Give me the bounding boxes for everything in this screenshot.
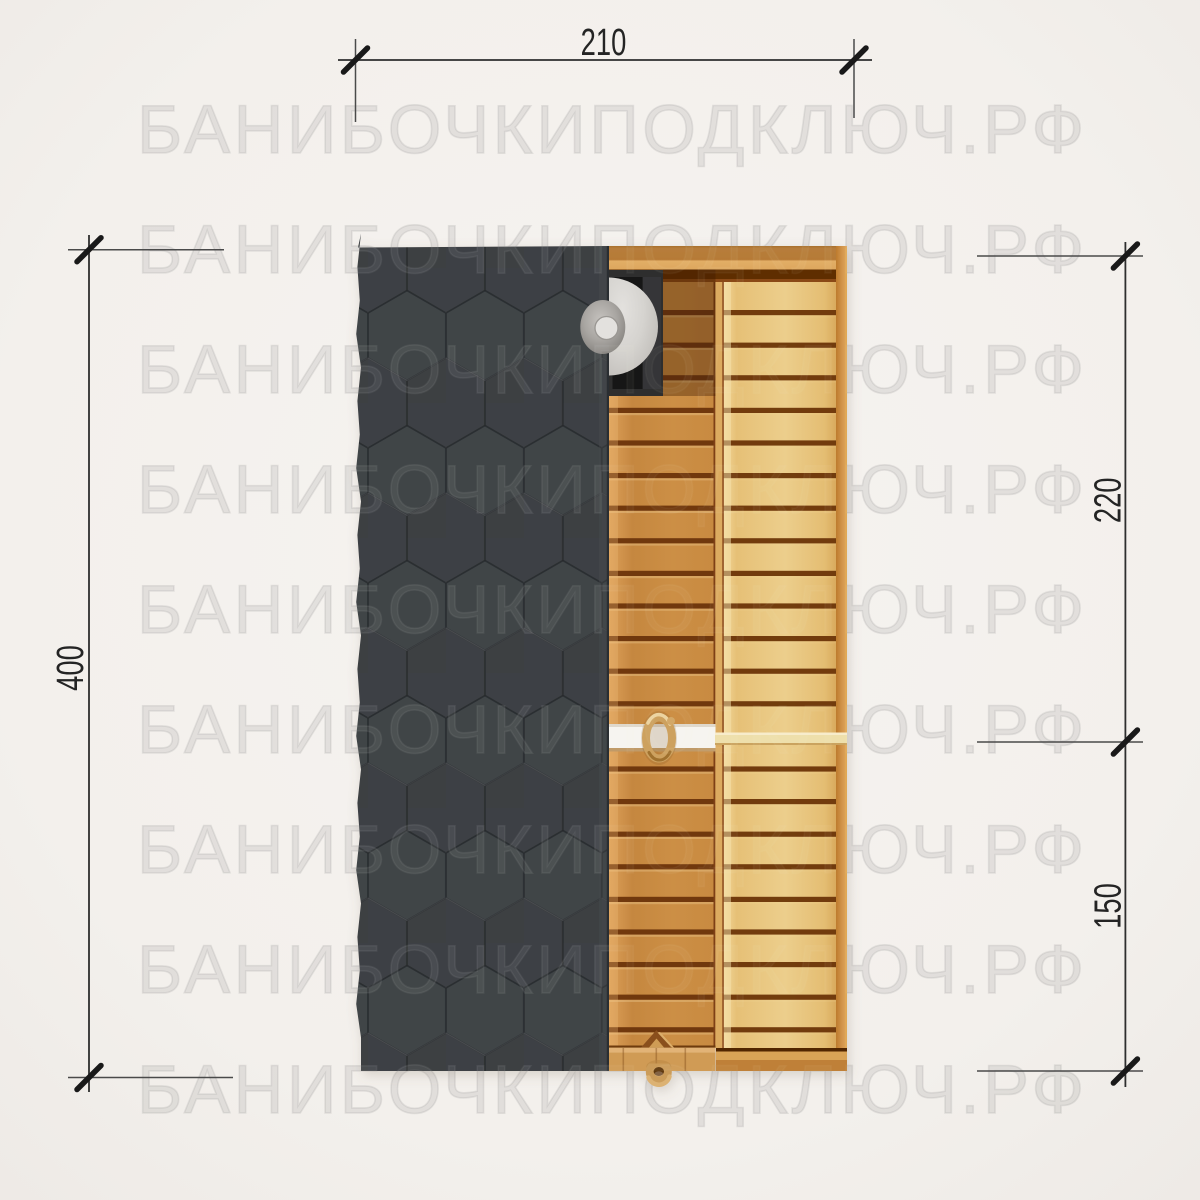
svg-text:400: 400 (50, 645, 92, 691)
svg-text:210: 210 (581, 22, 627, 64)
svg-text:220: 220 (1087, 477, 1129, 523)
svg-text:БАНИБОЧКИПОДКЛЮЧ.РФ: БАНИБОЧКИПОДКЛЮЧ.РФ (137, 91, 1087, 168)
svg-text:150: 150 (1087, 883, 1129, 929)
